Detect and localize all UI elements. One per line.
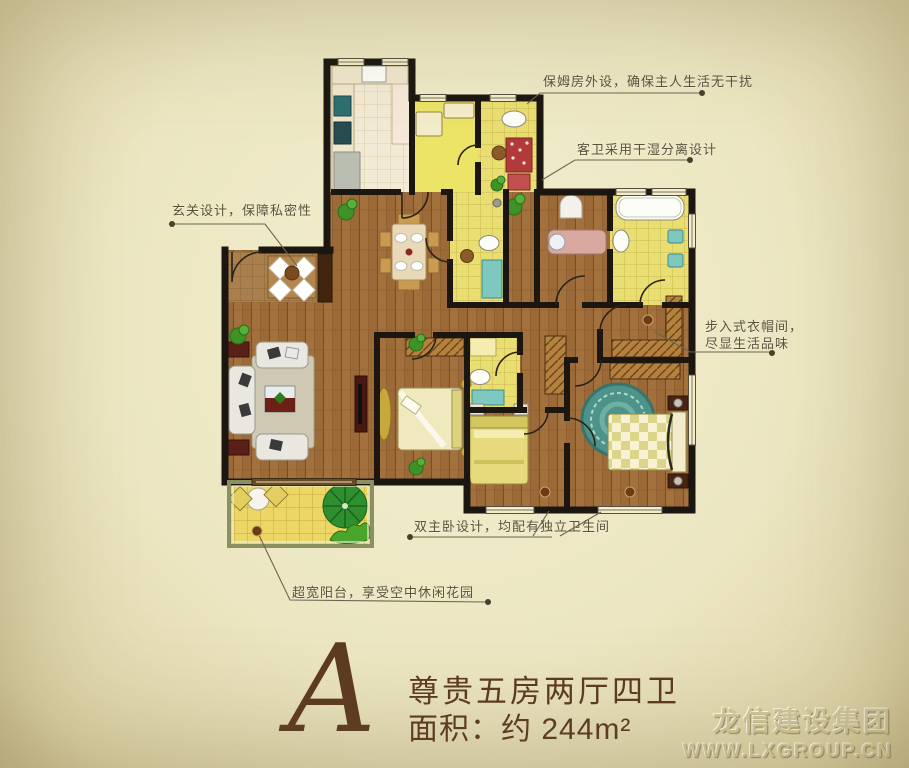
entry-cabinet <box>318 254 332 302</box>
plan-area: 面积：约 244m² <box>408 704 631 748</box>
entry-furniture <box>268 254 332 302</box>
sink-bowl <box>492 146 506 160</box>
annotation-balcony: 超宽阳台，享受空中休闲花园 <box>292 584 474 601</box>
sink <box>668 230 683 243</box>
tv <box>358 384 362 424</box>
parasol <box>323 484 367 528</box>
hall-wardrobe <box>545 336 566 394</box>
bed <box>398 388 462 450</box>
sofa <box>256 342 308 368</box>
wardrobe <box>610 363 680 379</box>
toilet <box>470 370 490 385</box>
shower <box>470 338 496 356</box>
annotation-closet-line1: 步入式衣帽间， <box>705 318 803 335</box>
floorplan-poster: 保姆房外设，确保主人生活无干扰 客卫采用干湿分离设计 玄关设计，保障私密性 步入… <box>0 0 909 768</box>
bedroom4-furniture <box>470 404 528 484</box>
nightstand <box>668 396 688 410</box>
bath-counter <box>482 260 502 298</box>
side-table <box>227 440 249 455</box>
annotation-closet: 步入式衣帽间， 尽显生活品味 <box>705 318 803 352</box>
annotation-entry: 玄关设计，保障私密性 <box>172 202 312 219</box>
armchair <box>560 195 582 218</box>
nightstand <box>668 474 688 488</box>
toilet <box>479 236 499 251</box>
kitchen-cabinet <box>334 152 360 190</box>
annotation-master: 双主卧设计，均配有独立卫生间 <box>414 518 610 535</box>
annotation-guest-bath: 客卫采用干湿分离设计 <box>577 141 717 158</box>
sink <box>668 254 683 267</box>
bathtub <box>616 195 684 220</box>
fridge <box>362 66 386 82</box>
sink-counter <box>472 390 504 405</box>
stove <box>334 122 351 144</box>
toilet <box>502 111 526 127</box>
annotation-maid-room: 保姆房外设，确保主人生活无干扰 <box>543 73 753 90</box>
plan-letter: A <box>288 628 408 750</box>
sofa <box>256 434 308 460</box>
toilet <box>613 230 629 252</box>
developer-logo: 龙信建设集团 WWW.LXGROUP.CN <box>683 700 893 763</box>
logo-company: 龙信建设集团 <box>683 700 893 739</box>
bed <box>608 412 686 472</box>
coffee-table <box>265 386 295 412</box>
entry-bowl <box>285 266 299 280</box>
kitchen-sink <box>334 96 351 116</box>
logo-website: WWW.LXGROUP.CN <box>683 741 893 763</box>
annotation-closet-line2: 尽显生活品味 <box>705 335 803 352</box>
shower-head <box>493 199 501 207</box>
